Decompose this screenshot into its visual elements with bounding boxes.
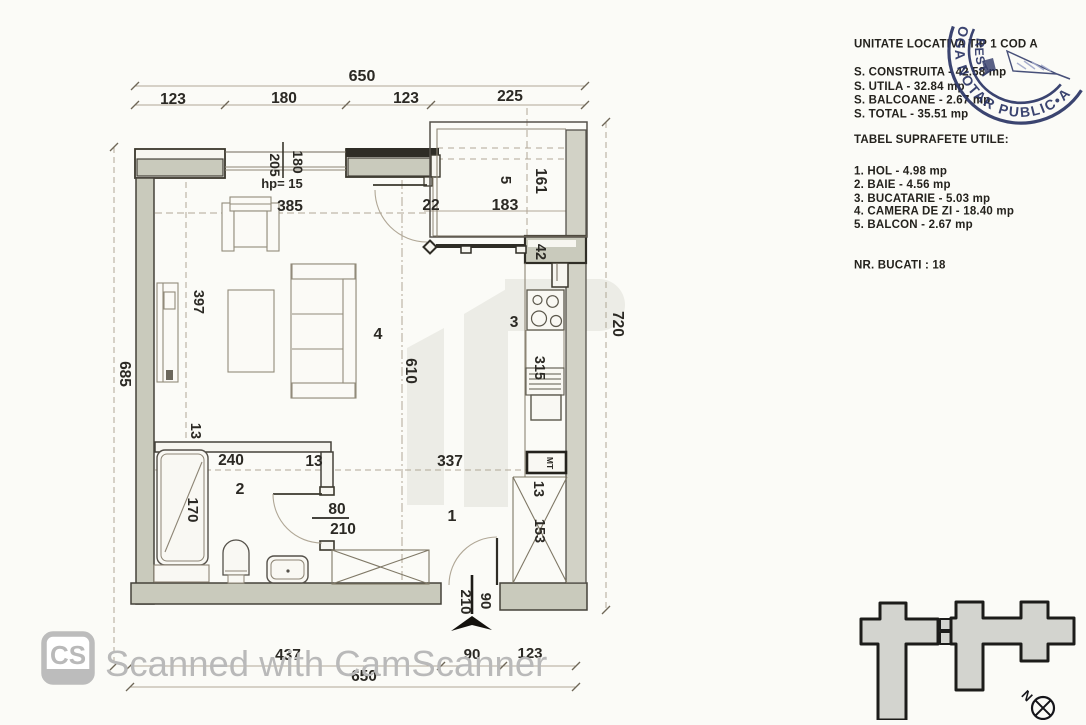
svg-text:90: 90 [477,593,494,610]
svg-text:337: 337 [437,453,463,470]
svg-text:3. BUCATARIE - 5.03 mp: 3. BUCATARIE - 5.03 mp [854,193,990,205]
svg-text:TABEL SUPRAFETE UTILE:: TABEL SUPRAFETE UTILE: [854,134,1009,146]
svg-text:Scanned with CamScanner: Scanned with CamScanner [105,643,547,684]
svg-text:S. UTILA - 32.84 mp: S. UTILA - 32.84 mp [854,81,965,93]
svg-text:CS: CS [50,640,86,670]
svg-text:1. HOL - 4.98 mp: 1. HOL - 4.98 mp [854,166,947,178]
svg-text:hp= 15: hp= 15 [261,176,303,191]
svg-text:1: 1 [448,508,457,525]
svg-text:397: 397 [190,290,206,314]
svg-text:685: 685 [116,361,133,387]
svg-text:4: 4 [374,326,383,343]
svg-text:NR. BUCATI : 18: NR. BUCATI : 18 [854,259,946,271]
svg-text:13: 13 [530,481,546,497]
svg-text:240: 240 [218,452,244,469]
svg-text:4. CAMERA DE ZI - 18.40 mp: 4. CAMERA DE ZI - 18.40 mp [854,206,1014,218]
svg-text:2. BAIE - 4.56 mp: 2. BAIE - 4.56 mp [854,179,951,191]
svg-text:183: 183 [492,197,519,214]
svg-text:123: 123 [393,90,419,107]
svg-text:315: 315 [531,356,547,380]
svg-text:385: 385 [277,198,303,215]
svg-text:180: 180 [290,150,306,174]
svg-text:2: 2 [236,481,245,498]
svg-text:210: 210 [457,589,474,614]
svg-text:UNITATE LOCATIVA TIP 1 COD A: UNITATE LOCATIVA TIP 1 COD A [854,39,1038,51]
svg-text:170: 170 [184,497,201,522]
svg-text:5: 5 [497,176,514,184]
svg-text:210: 210 [330,521,356,538]
svg-text:13: 13 [187,423,203,439]
svg-text:720: 720 [609,311,626,337]
svg-text:153: 153 [531,519,547,543]
svg-text:MT: MT [545,457,555,470]
svg-text:13: 13 [305,453,323,470]
svg-text:225: 225 [497,88,523,105]
svg-text:80: 80 [328,501,345,518]
svg-text:650: 650 [349,68,376,85]
svg-text:180: 180 [271,90,297,107]
svg-text:S. TOTAL - 35.51 mp: S. TOTAL - 35.51 mp [854,108,968,120]
svg-text:610: 610 [402,358,419,384]
svg-text:5. BALCON - 2.67 mp: 5. BALCON - 2.67 mp [854,219,973,231]
svg-text:3: 3 [510,314,519,331]
svg-text:22: 22 [422,197,439,214]
svg-text:123: 123 [160,91,186,108]
svg-text:161: 161 [532,168,549,194]
svg-text:205: 205 [267,153,283,177]
svg-text:42: 42 [532,244,548,260]
